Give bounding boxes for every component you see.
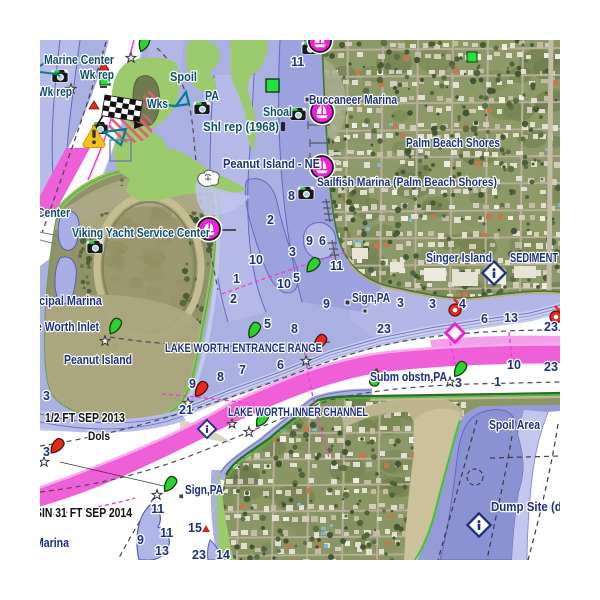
svg-text:11: 11 bbox=[160, 526, 173, 540]
svg-text:Marine Center: Marine Center bbox=[44, 53, 114, 67]
svg-text:Wks: Wks bbox=[147, 97, 168, 111]
svg-text:e Worth Inlet: e Worth Inlet bbox=[36, 320, 100, 334]
svg-text:3: 3 bbox=[43, 389, 50, 403]
svg-text:3: 3 bbox=[455, 376, 462, 390]
svg-text:8: 8 bbox=[217, 370, 224, 384]
svg-text:23: 23 bbox=[192, 548, 206, 562]
svg-text:Spoil: Spoil bbox=[170, 70, 197, 84]
svg-text:Spoil Area: Spoil Area bbox=[489, 418, 541, 432]
svg-text:Sign,PA: Sign,PA bbox=[352, 291, 390, 305]
svg-text:Buccaneer Marina: Buccaneer Marina bbox=[309, 93, 398, 107]
svg-text:Peanut Island - NE: Peanut Island - NE bbox=[223, 157, 320, 171]
svg-text:6: 6 bbox=[481, 312, 488, 326]
svg-text:21: 21 bbox=[179, 403, 193, 417]
svg-text:Wk rep: Wk rep bbox=[38, 85, 72, 99]
svg-text:10: 10 bbox=[507, 358, 521, 372]
svg-text:6: 6 bbox=[277, 358, 284, 372]
svg-text:9: 9 bbox=[306, 234, 313, 248]
svg-text:13: 13 bbox=[155, 544, 169, 558]
svg-text:LAKE WORTH ENTRANCE RANGE: LAKE WORTH ENTRANCE RANGE bbox=[165, 341, 322, 355]
svg-text:SIN 31 FT SEP 2014: SIN 31 FT SEP 2014 bbox=[35, 506, 132, 520]
svg-text:5: 5 bbox=[264, 317, 271, 331]
svg-text:Singer Island: Singer Island bbox=[426, 251, 492, 265]
svg-text:23: 23 bbox=[544, 320, 558, 334]
svg-text:LAKE WORTH INNER CHANNEL: LAKE WORTH INNER CHANNEL bbox=[228, 405, 368, 419]
svg-text:23: 23 bbox=[377, 322, 391, 336]
svg-text:PA: PA bbox=[205, 89, 219, 103]
svg-text:1/2 FT SEP 2013: 1/2 FT SEP 2013 bbox=[45, 411, 125, 425]
svg-text:3: 3 bbox=[43, 445, 50, 459]
svg-text:14: 14 bbox=[216, 548, 230, 562]
svg-text:23: 23 bbox=[544, 360, 558, 374]
svg-text:Viking Yacht Service Center: Viking Yacht Service Center bbox=[72, 226, 210, 240]
svg-text:Shl rep (1968): Shl rep (1968) bbox=[203, 120, 279, 134]
svg-text:15: 15 bbox=[188, 521, 202, 535]
svg-text:5: 5 bbox=[293, 271, 300, 285]
svg-text:10: 10 bbox=[249, 253, 263, 267]
svg-text:Sign,PA: Sign,PA bbox=[185, 483, 223, 497]
svg-text:8: 8 bbox=[288, 189, 295, 203]
svg-text:1: 1 bbox=[494, 375, 501, 389]
svg-text:9: 9 bbox=[137, 533, 144, 547]
svg-text:Dols: Dols bbox=[88, 429, 110, 443]
svg-text:Palm Beach Shores: Palm Beach Shores bbox=[406, 136, 500, 150]
svg-text:Dump Site (di: Dump Site (di bbox=[491, 500, 565, 514]
svg-text:13: 13 bbox=[504, 311, 518, 325]
svg-text:11: 11 bbox=[330, 259, 343, 273]
svg-text:Shoal: Shoal bbox=[263, 105, 292, 119]
svg-text:3: 3 bbox=[397, 296, 404, 310]
svg-text:11: 11 bbox=[291, 55, 304, 69]
svg-text:SEDIMENT: SEDIMENT bbox=[510, 251, 558, 265]
svg-text:2: 2 bbox=[230, 292, 237, 306]
svg-text:9: 9 bbox=[189, 377, 196, 391]
svg-text:Peanut Island: Peanut Island bbox=[64, 353, 132, 367]
svg-text:2: 2 bbox=[267, 213, 274, 227]
svg-text:4: 4 bbox=[459, 297, 466, 311]
svg-text:11: 11 bbox=[151, 502, 164, 516]
svg-text:8: 8 bbox=[291, 322, 298, 336]
svg-text:6: 6 bbox=[319, 234, 326, 248]
svg-text:3: 3 bbox=[289, 245, 296, 259]
svg-text:Center: Center bbox=[37, 206, 70, 220]
svg-text:icipal Marina: icipal Marina bbox=[36, 294, 103, 308]
svg-text:Subm obstn,PA: Subm obstn,PA bbox=[370, 370, 447, 384]
svg-text:3: 3 bbox=[429, 297, 436, 311]
svg-text:1: 1 bbox=[233, 272, 240, 286]
svg-text:Wk rep: Wk rep bbox=[80, 68, 114, 82]
svg-text:7: 7 bbox=[239, 363, 246, 377]
svg-text:9: 9 bbox=[323, 297, 330, 311]
svg-text:Marina: Marina bbox=[35, 536, 70, 550]
svg-text:10: 10 bbox=[277, 277, 291, 291]
svg-text:Sailfish Marina (Palm Beach Sh: Sailfish Marina (Palm Beach Shores) bbox=[317, 175, 497, 189]
